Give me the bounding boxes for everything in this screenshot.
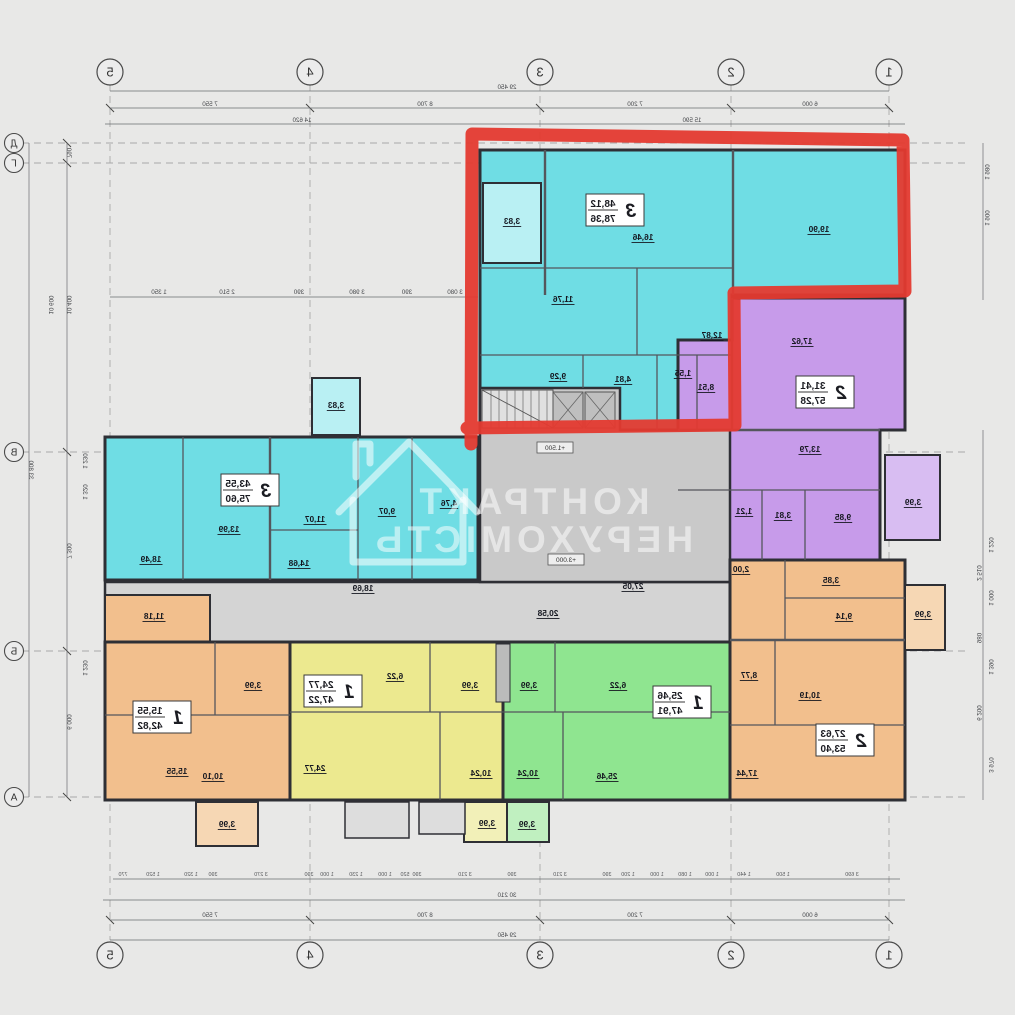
apartment-total-area: 78,36 [590, 214, 615, 225]
dimension-label-small: 390 [305, 872, 314, 878]
apartment-total-area: 53,40 [820, 744, 845, 755]
room-area-label: 13,99 [218, 524, 239, 534]
apartment-total-area: 47,22 [308, 695, 333, 706]
room-area-label: 10,19 [799, 690, 820, 700]
dimension-label-small: 3 210 [458, 872, 472, 878]
room-area-label: 9,14 [836, 611, 853, 621]
room-area-label: 3,99 [519, 819, 536, 829]
room-area-label: 8,51 [698, 382, 715, 392]
dimension-label: 7 550 [202, 912, 218, 919]
room-area-label: 3,99 [521, 680, 538, 690]
dimension-label-small: 1 000 [378, 872, 392, 878]
dimension-label-small: 1 320 [184, 872, 198, 878]
dimension-label: 1 900 [983, 210, 990, 226]
room-area-label: 24,77 [304, 763, 325, 773]
dimension-label-small: 1 000 [650, 872, 664, 878]
dimension-label: 8 700 [417, 912, 433, 919]
dimension-label: 3 970 [987, 757, 994, 773]
dimension-label: 980 [975, 632, 982, 643]
apartment-total-area: 42,82 [137, 721, 162, 732]
apartment-total-area: 47,91 [657, 706, 682, 717]
dimension-label: 7 550 [202, 101, 218, 108]
room-area-label: 10,24 [470, 768, 491, 778]
apartment-living-area: 25,46 [657, 691, 682, 702]
room-area-label: 27,05 [622, 581, 643, 591]
dimension-label: 7 200 [627, 912, 643, 919]
room-area-label: 18,69 [352, 583, 373, 593]
dimension-label: 390 [401, 289, 412, 296]
dimension-label: 390 [293, 289, 304, 296]
room-area-label: 12,87 [701, 330, 722, 340]
room-area-label: 9,85 [835, 512, 852, 522]
apartment-rooms-count: 2 [855, 731, 867, 752]
room-area-label: 8,77 [741, 670, 758, 680]
room-area-label: 18,49 [140, 554, 161, 564]
dimension-label: 30 210 [497, 892, 516, 899]
dimension-label: 1 390 [987, 659, 994, 675]
dimension-label: 6 000 [802, 912, 818, 919]
dimension-label-small: 1 230 [349, 872, 363, 878]
room-area-label: 3,99 [479, 818, 496, 828]
room-area-label: 15,55 [166, 766, 187, 776]
apartment-living-area: 43,55 [225, 479, 250, 490]
apartment-living-area: 15,55 [137, 706, 162, 717]
apartment-rooms-count: 1 [173, 708, 184, 729]
dimension-label-small: 390 [209, 872, 218, 878]
dimension-label-small: 770 [119, 872, 128, 878]
dimension-label-small: 1 080 [678, 872, 692, 878]
dimension-label-small: 1 000 [705, 872, 719, 878]
room-area-label: 3,99 [462, 680, 479, 690]
dimension-label: 6 000 [802, 101, 818, 108]
dimension-label: 7 200 [627, 101, 643, 108]
dimension-label: 29 450 [497, 932, 516, 939]
dimension-label: 10 600 [47, 295, 54, 314]
grid-bubble-column-label: 2 [727, 948, 734, 963]
watermark-text-line2: НЕРУХОМІСТЬ [371, 519, 693, 560]
grid-bubble-column-label: 4 [306, 948, 313, 963]
dimension-label-small: 390 [603, 872, 612, 878]
dimension-label-small: 1 440 [737, 872, 751, 878]
room-area-label: 11,76 [552, 294, 573, 304]
grid-bubble-column-label: 2 [727, 65, 734, 80]
room-area-label: 20,58 [537, 608, 558, 618]
floor-plan-screenshot: 29 4506 0007 2008 7007 55015 59014 6203 … [0, 0, 1015, 1015]
dimension-label: 15 590 [682, 117, 701, 124]
room-area-label: 11,07 [304, 514, 325, 524]
grid-bubble-row-label: Г [11, 159, 17, 170]
mirrored-drawing-wrapper: 29 4506 0007 2008 7007 55015 59014 6203 … [0, 0, 1015, 1015]
entrance-porch [419, 802, 465, 834]
room-area-label: 25,46 [596, 771, 617, 781]
room-area-label: 10,10 [202, 771, 223, 781]
grid-bubble-row-label: В [10, 448, 17, 459]
dimension-label-small: 3 210 [553, 872, 567, 878]
dimension-label: 7 300 [65, 543, 72, 559]
room-area-label: 6,22 [610, 680, 627, 690]
grid-bubble-column-label: 5 [106, 948, 113, 963]
dimension-label-small: 390 [413, 872, 422, 878]
room-area-label: 11,18 [143, 611, 164, 621]
room-area-label: 13,79 [799, 444, 820, 454]
dimension-label-small: 1 500 [776, 872, 790, 878]
dimension-label: 1 000 [987, 590, 994, 606]
dimension-label: 14 620 [292, 117, 311, 124]
grid-bubble-row-label: Д [10, 139, 17, 150]
dimension-label: 10 400 [65, 295, 72, 314]
dimension-label: 6 000 [65, 714, 72, 730]
shaft [496, 644, 510, 702]
grid-bubble-row-label: А [10, 793, 17, 804]
room-area-label: 17,62 [791, 336, 812, 346]
dimension-label: 6 200 [975, 705, 982, 721]
apartment-rooms-count: 1 [344, 682, 355, 703]
dimension-label-small: 520 [401, 872, 410, 878]
apartment-rooms-count: 1 [693, 693, 704, 714]
room-area-label: 3,81 [775, 510, 792, 520]
room-area-label: 10,24 [517, 768, 538, 778]
room-area-label: 4,81 [615, 374, 632, 384]
apartment-living-area: 27,63 [820, 729, 845, 740]
room-area-label: 3,83 [328, 400, 345, 410]
dimension-label: 1 350 [151, 289, 167, 296]
room-area-label: 9,07 [379, 506, 396, 516]
room-area-label: 3,99 [905, 497, 922, 507]
room-area-label: 14,68 [288, 558, 309, 568]
room-area-label: 3,99 [915, 609, 932, 619]
grid-bubble-column-label: 1 [885, 948, 892, 963]
dimension-label-small: 1 520 [146, 872, 160, 878]
dimension-label: 2 510 [975, 565, 982, 581]
room-area-label: 3,99 [245, 680, 262, 690]
dimension-label: 1 980 [983, 164, 990, 180]
dimension-label: 2 510 [219, 289, 235, 296]
dimension-label-small: 3 690 [845, 872, 859, 878]
apartment-rooms-count: 2 [835, 383, 847, 404]
apartment-rooms-count: 3 [260, 481, 271, 502]
dimension-label: 33 800 [27, 460, 34, 479]
grid-bubble-column-label: 3 [536, 948, 543, 963]
watermark-text-line1: КОНТРАКТ [415, 481, 650, 522]
room-area-label: 1,55 [675, 368, 692, 378]
apartment-total-area: 57,28 [800, 396, 825, 407]
apartment-rooms-count: 3 [625, 201, 636, 222]
apartment-living-area: 24,77 [308, 680, 333, 691]
room-area-label: 17,44 [736, 768, 757, 778]
dimension-label: 790 [65, 147, 72, 158]
grid-bubble-column-label: 4 [306, 65, 313, 80]
dimension-label-small: 1 000 [320, 872, 334, 878]
grid-bubble-row-label: Б [10, 647, 17, 658]
dimension-label: 3 080 [447, 289, 463, 296]
dimension-label: 1 230 [81, 453, 88, 469]
room-area-label: 3,83 [504, 216, 521, 226]
dimension-label-small: 390 [508, 872, 517, 878]
room-area-label: 1,21 [736, 506, 753, 516]
room-area-label: 9,29 [550, 371, 567, 381]
grid-bubble-column-label: 1 [885, 65, 892, 80]
dimension-label: 1 320 [81, 484, 88, 500]
dimension-label-small: 3 270 [254, 872, 268, 878]
dimension-label: 29 450 [497, 84, 516, 91]
room-area-label: 19,90 [808, 224, 829, 234]
dimension-label: 3 980 [349, 289, 365, 296]
floor-plan-svg: 29 4506 0007 2008 7007 55015 59014 6203 … [0, 0, 1015, 1015]
grid-bubble-column-label: 3 [536, 65, 543, 80]
room-area-label: 3,85 [823, 575, 840, 585]
dimension-label-small: 1 200 [621, 872, 635, 878]
room-area-label: 16,46 [632, 232, 653, 242]
apartment-living-area: 31,41 [800, 381, 825, 392]
dimension-label: 8 700 [417, 101, 433, 108]
room-area-label: 2,00 [733, 564, 750, 574]
grid-bubble-column-label: 5 [106, 65, 113, 80]
dimension-label: 1 230 [81, 660, 88, 676]
apartment-total-area: 75,60 [225, 494, 250, 505]
apartment-living-area: 48,12 [590, 199, 615, 210]
room-area-label: 6,22 [387, 671, 404, 681]
room-area-label: 3,99 [219, 819, 236, 829]
level-mark-label: +1.500 [545, 445, 565, 452]
entrance-porch [345, 802, 409, 838]
dimension-label: 1 220 [987, 537, 994, 553]
